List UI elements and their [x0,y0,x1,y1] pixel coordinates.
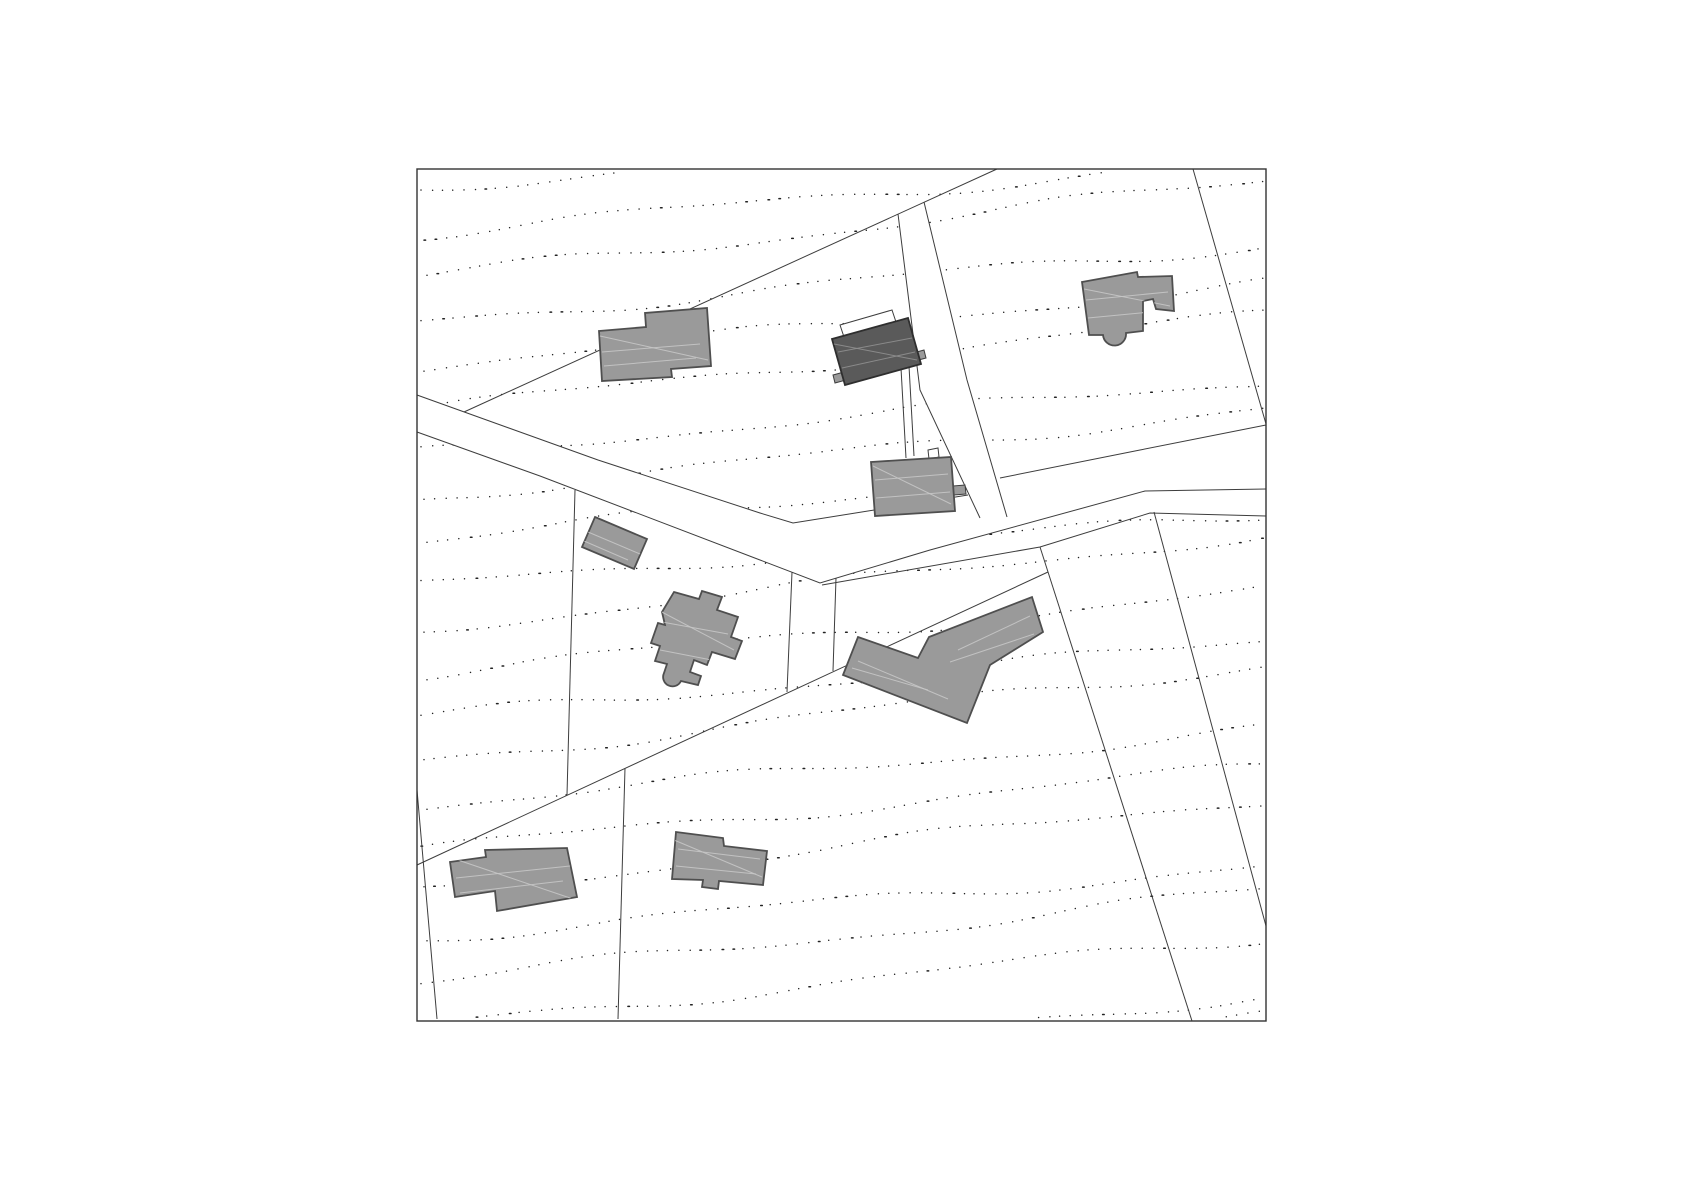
main-road-surface [417,395,1266,583]
building-center-north [871,457,955,516]
contour-dotted-line [1039,1000,1254,1018]
parcel-line-southwest-corner [417,790,437,1019]
contour-dotted-line [427,182,1263,276]
parcel-line-northeast-diagonal [1193,169,1266,424]
parcel-line-center-short-east [833,578,836,671]
building-south [672,832,767,889]
buildings-layer [450,272,1174,911]
contour-dotted-line [421,642,1259,716]
parcel-line-southeast-steep [1040,547,1192,1021]
driveway-line-west [901,368,906,458]
parcel-line-center-short-west [787,572,792,692]
contour-dotted-line [421,386,1258,446]
contour-dotted-line [424,173,1101,240]
building-east-large [843,597,1043,723]
contour-dotted-line [427,587,1253,679]
annex-tab-south [953,485,966,495]
contour-dotted-line [421,173,614,190]
driveway-line-east [909,366,914,456]
contour-dotted-line [1226,1011,1259,1017]
site-plan-map [0,0,1684,1190]
site-plan-page [0,0,1684,1190]
building-southwest [450,848,577,911]
parcel-line-east-steep [1154,512,1266,926]
building-northeast [1082,272,1174,346]
building-central [651,591,742,686]
parcel-line-south-vertical [618,768,625,1019]
contour-dotted-line [427,725,1254,809]
